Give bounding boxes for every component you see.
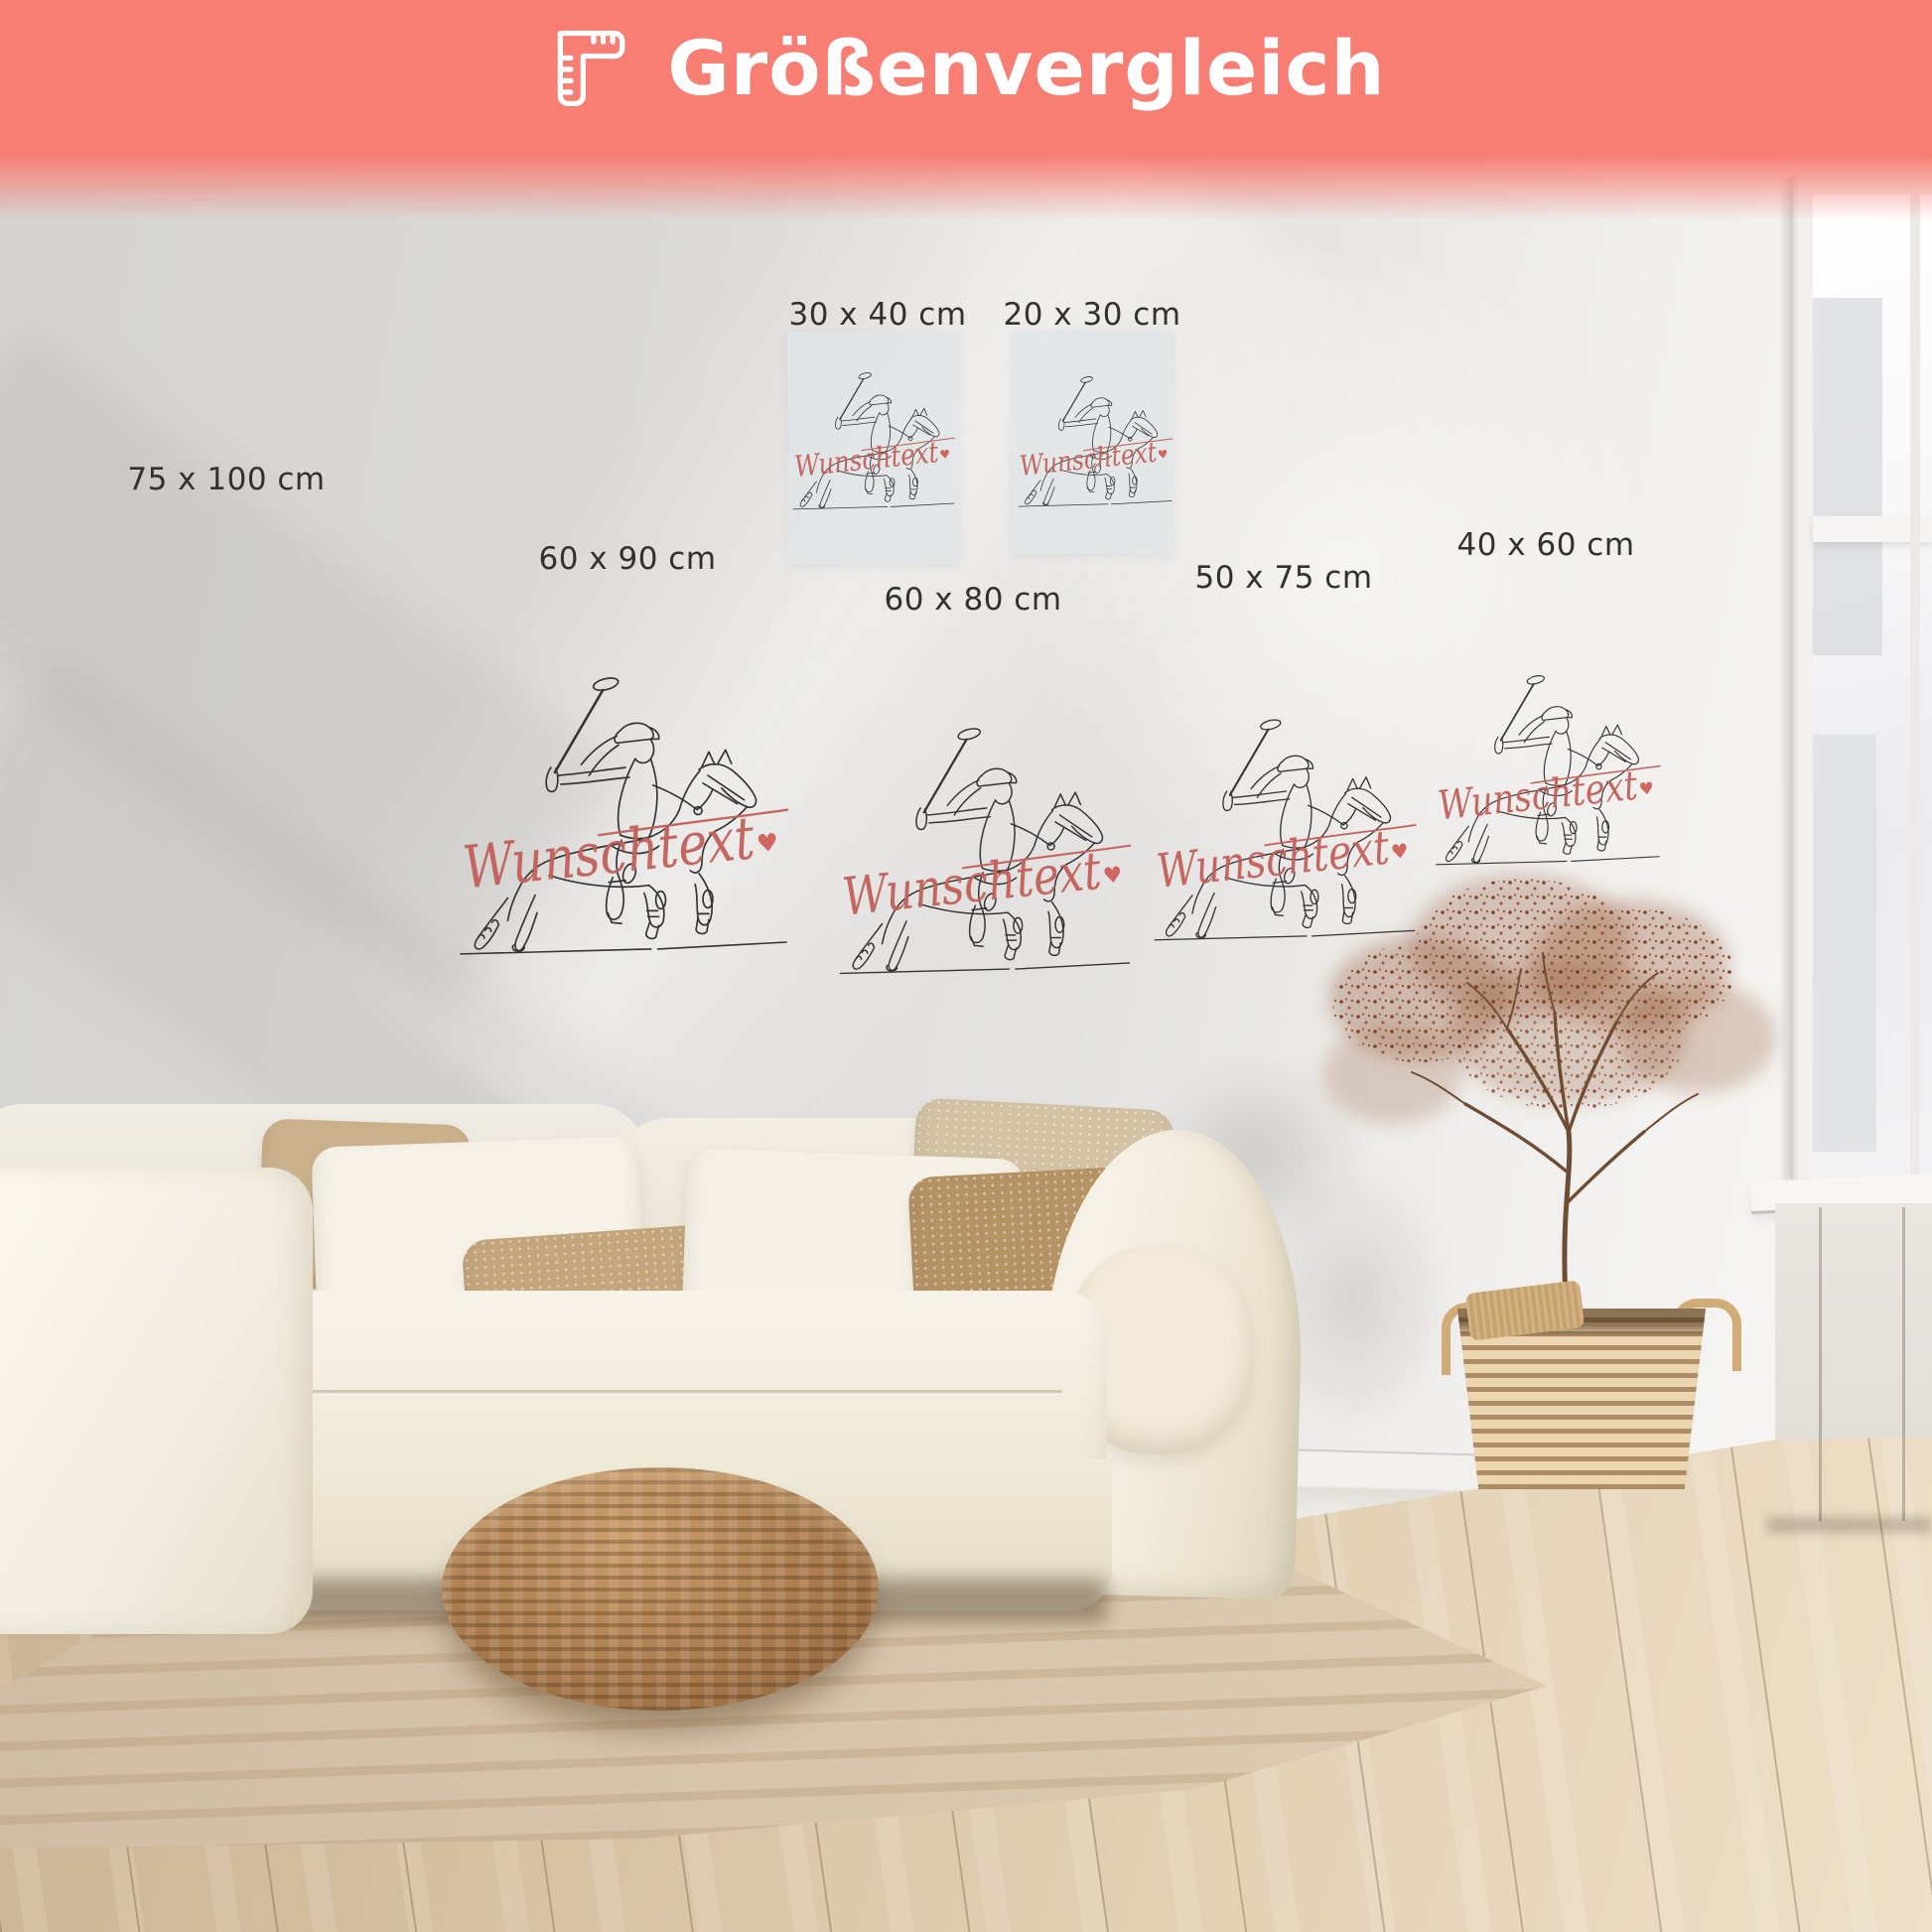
size-label-60x80: 60 x 80 cm <box>884 582 1061 618</box>
poster-art-60x80 <box>837 723 1133 984</box>
window-pane-reflection <box>1813 298 1882 655</box>
window-pane-reflection <box>1813 735 1876 1152</box>
poster-art-50x75 <box>1152 713 1418 951</box>
poster-art-60x90 <box>457 671 790 966</box>
size-label-40x60: 40 x 60 cm <box>1456 527 1634 563</box>
wicker-pouf <box>442 1467 879 1711</box>
cabinet-floor-shadow <box>1767 1517 1932 1533</box>
poster-art-40x60 <box>1434 670 1662 874</box>
window-side-frame <box>1910 195 1920 1187</box>
cabinet-door-seam <box>1819 1207 1822 1521</box>
size-comparison-banner: Größenvergleich <box>0 0 1932 220</box>
size-label-75x100: 75 x 100 cm <box>127 462 325 497</box>
poster-art-30x40 <box>791 369 956 515</box>
size-label-30x40: 30 x 40 cm <box>788 297 966 333</box>
ruler-icon <box>546 22 637 113</box>
sofa-chaise <box>0 1168 313 1634</box>
size-label-50x75: 50 x 75 cm <box>1194 560 1372 596</box>
size-label-60x90: 60 x 90 cm <box>538 541 716 577</box>
banner-title: Größenvergleich <box>667 24 1385 112</box>
poster-art-20x30 <box>1017 373 1173 512</box>
cabinet-door-seam <box>1902 1207 1905 1521</box>
product-size-comparison-mockup: Wunschtext ♥ 75 x 100 cm 30 x 40 cm 20 x… <box>0 0 1932 1932</box>
size-label-20x30: 20 x 30 cm <box>1003 297 1180 333</box>
